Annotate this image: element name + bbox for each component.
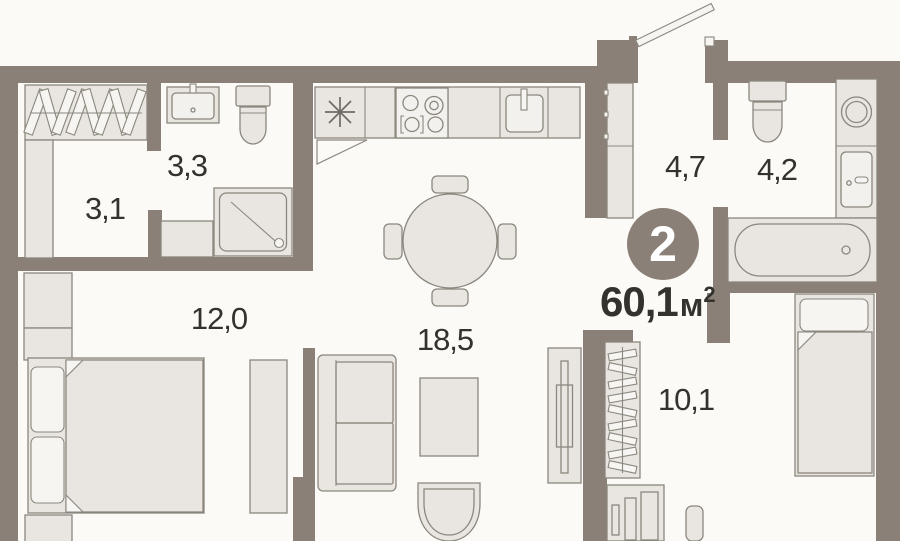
wall-segment [148, 210, 162, 258]
room-area-label-hallway: 3,1 [85, 191, 125, 227]
desk-with-computer [607, 485, 664, 541]
kitchen-sink-icon [506, 89, 543, 132]
bathtub [728, 218, 877, 282]
floor-plan: 3,1 3,3 12,0 18,5 4,7 4,2 10,1 2 60,1м2 [0, 0, 900, 541]
armchair [418, 483, 480, 541]
total-area-value: 60,1 [600, 278, 678, 325]
dining-table [384, 176, 516, 306]
room-area-label-bathroom-small: 3,3 [167, 148, 207, 184]
room-area-label-entry-hall: 4,7 [665, 149, 705, 185]
wall-segment [876, 61, 900, 541]
entry-cabinet [604, 83, 633, 218]
shower-icon [214, 188, 292, 256]
fridge-icon [325, 97, 355, 127]
tv-console [548, 348, 581, 483]
kitchen-door-swing [317, 140, 367, 164]
wall-segment [585, 80, 607, 218]
entrance-door [629, 3, 714, 46]
single-bed [795, 294, 874, 476]
wall-segment [147, 83, 161, 151]
total-area-sup: 2 [703, 282, 714, 307]
total-area-unit: м [680, 287, 703, 323]
coffee-table [420, 378, 478, 456]
rooms-count-badge: 2 [627, 208, 699, 280]
sofa [318, 355, 396, 491]
stove-icon [396, 88, 448, 138]
wall-segment [583, 330, 633, 342]
wall-segment [597, 40, 638, 83]
wall-segment [18, 257, 313, 271]
floor-plan-drawing [0, 0, 900, 541]
wall-segment [293, 477, 315, 541]
bathroom-sink-icon [841, 152, 872, 207]
room-area-label-bathroom-main: 4,2 [757, 152, 797, 188]
total-area-label: 60,1м2 [600, 278, 715, 326]
sink-icon [167, 84, 219, 123]
toilet-icon [749, 81, 786, 142]
wall-segment [0, 66, 18, 541]
wall-segment [713, 40, 728, 140]
dresser [250, 360, 287, 513]
bath-cabinet [161, 221, 213, 257]
rooms-count-value: 2 [649, 215, 677, 273]
wall-segment [0, 66, 600, 83]
double-bed [28, 358, 204, 513]
wall-segment [713, 282, 877, 293]
wall-segment [713, 207, 728, 293]
wall-segment [583, 330, 607, 541]
room-area-label-bedroom-second: 10,1 [658, 382, 714, 418]
wardrobe-hangers-icon [605, 342, 640, 478]
hall-cabinet [25, 140, 53, 258]
wardrobe-hangers-icon [24, 85, 147, 140]
wall-segment [293, 83, 313, 271]
desk-chair [686, 506, 703, 541]
nightstand [25, 515, 72, 541]
room-area-label-kitchen-living: 18,5 [417, 322, 473, 358]
room-area-label-bedroom-main: 12,0 [191, 301, 247, 337]
wardrobe [24, 273, 72, 360]
toilet-icon [236, 86, 270, 144]
